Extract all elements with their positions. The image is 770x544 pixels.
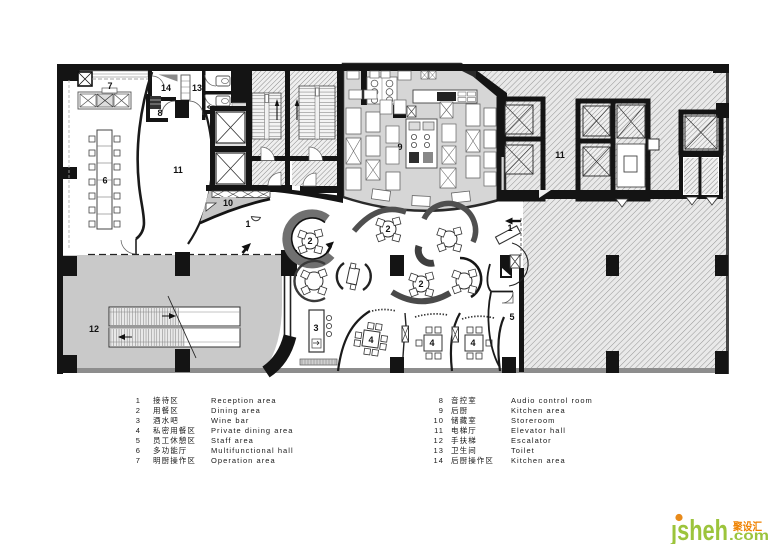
svg-text:12: 12: [434, 436, 444, 445]
svg-text:Multifunctional hall: Multifunctional hall: [211, 446, 294, 455]
svg-text:Wine bar: Wine bar: [211, 416, 249, 425]
svg-text:Toilet: Toilet: [511, 446, 535, 455]
svg-text:6: 6: [102, 176, 107, 186]
svg-text:Audio control room: Audio control room: [511, 396, 593, 405]
svg-text:8: 8: [439, 396, 444, 405]
svg-text:Storeroom: Storeroom: [511, 416, 555, 425]
svg-text:电梯厅: 电梯厅: [451, 425, 477, 435]
svg-text:2: 2: [418, 279, 423, 289]
svg-text:10: 10: [434, 416, 444, 425]
svg-text:7: 7: [136, 456, 141, 465]
svg-text:11: 11: [555, 150, 565, 160]
svg-text:储藏室: 储藏室: [451, 415, 477, 425]
svg-text:2: 2: [136, 406, 141, 415]
svg-text:10: 10: [223, 198, 233, 208]
svg-text:接待区: 接待区: [153, 395, 179, 405]
svg-text:14: 14: [434, 456, 444, 465]
svg-text:Private dining area: Private dining area: [211, 426, 294, 435]
svg-text:Kitchen area: Kitchen area: [511, 456, 566, 465]
svg-text:Operation area: Operation area: [211, 456, 276, 465]
svg-text:4: 4: [368, 335, 373, 345]
svg-text:5: 5: [136, 436, 141, 445]
svg-text:6: 6: [136, 446, 141, 455]
svg-text:13: 13: [434, 446, 444, 455]
svg-text:1: 1: [245, 219, 250, 229]
svg-text:私密用餐区: 私密用餐区: [153, 425, 196, 435]
svg-text:卫生间: 卫生间: [451, 445, 477, 455]
svg-text:14: 14: [161, 83, 171, 93]
svg-text:4: 4: [470, 338, 475, 348]
svg-text:3: 3: [313, 323, 318, 333]
svg-text:明厨操作区: 明厨操作区: [153, 455, 196, 465]
svg-text:音控室: 音控室: [451, 395, 477, 405]
svg-text:13: 13: [192, 83, 202, 93]
svg-text:手扶梯: 手扶梯: [451, 435, 477, 445]
svg-text:Dining area: Dining area: [211, 406, 261, 415]
svg-text:用餐区: 用餐区: [153, 406, 179, 415]
svg-text:1: 1: [507, 223, 512, 233]
svg-text:多功能厅: 多功能厅: [153, 445, 187, 455]
svg-text:4: 4: [136, 426, 141, 435]
svg-text:2: 2: [385, 224, 390, 234]
svg-text:员工休憩区: 员工休憩区: [153, 435, 196, 445]
svg-text:Escalator: Escalator: [511, 436, 552, 445]
svg-text:Reception area: Reception area: [211, 396, 277, 405]
svg-text:4: 4: [429, 338, 434, 348]
svg-text:12: 12: [89, 324, 99, 334]
svg-text:1: 1: [136, 396, 141, 405]
svg-text:2: 2: [307, 236, 312, 246]
svg-text:3: 3: [136, 416, 141, 425]
svg-text:11: 11: [173, 165, 183, 175]
svg-text:酒水吧: 酒水吧: [153, 415, 179, 425]
svg-text:5: 5: [509, 312, 514, 322]
svg-text:11: 11: [434, 426, 444, 435]
svg-text:后厨: 后厨: [451, 405, 468, 415]
svg-text:后厨操作区: 后厨操作区: [451, 455, 494, 465]
svg-text:Elevator hall: Elevator hall: [511, 426, 566, 435]
svg-text:7: 7: [107, 81, 112, 91]
svg-text:Staff area: Staff area: [211, 436, 254, 445]
svg-text:.com: .com: [729, 527, 769, 543]
svg-text:Kitchen area: Kitchen area: [511, 406, 566, 415]
svg-text:9: 9: [439, 406, 444, 415]
